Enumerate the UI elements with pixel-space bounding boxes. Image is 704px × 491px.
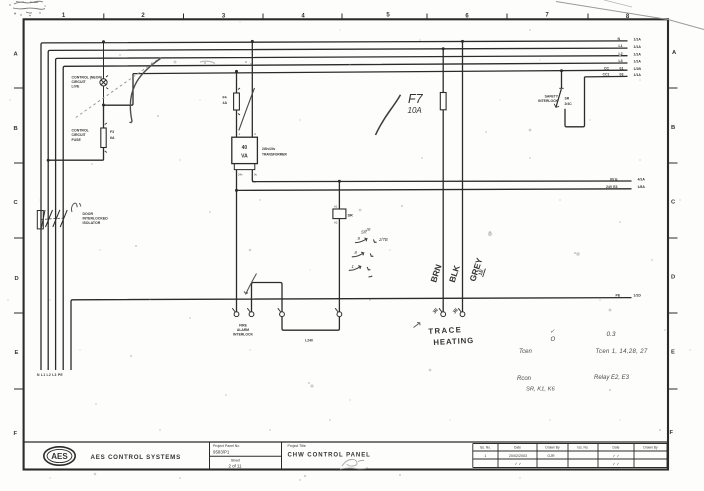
svg-text:FUSE: FUSE: [72, 138, 82, 142]
svg-text:TRANSFORMER: TRANSFORMER: [262, 153, 287, 157]
svg-text:1/1A: 1/1A: [634, 45, 642, 49]
svg-text:✓ ✓: ✓ ✓: [514, 462, 521, 466]
svg-text:CONTROL (NEON): CONTROL (NEON): [72, 75, 103, 79]
svg-text:B: B: [671, 125, 675, 131]
svg-text:CC1: CC1: [603, 73, 610, 77]
svg-text:1/1D: 1/1D: [634, 294, 642, 298]
svg-text:F7: F7: [408, 92, 424, 106]
svg-text:1/1A: 1/1A: [634, 60, 642, 64]
svg-text:40: 40: [242, 145, 248, 151]
svg-text:24v: 24v: [238, 173, 243, 177]
svg-text:L3: L3: [619, 59, 623, 63]
svg-text:VA: VA: [241, 154, 248, 160]
svg-text:Drawn By: Drawn By: [643, 446, 658, 450]
svg-text:Rcon: Rcon: [517, 376, 532, 382]
svg-text:9583/P1: 9583/P1: [213, 449, 230, 454]
svg-text:Sheet: Sheet: [231, 458, 240, 462]
svg-text:F4: F4: [223, 96, 227, 100]
svg-text:B: B: [14, 126, 18, 132]
svg-text:FIRE: FIRE: [239, 324, 247, 328]
svg-text:01: 01: [620, 66, 624, 70]
svg-text:PE: PE: [616, 294, 621, 298]
svg-text:Tcen 1, 14,28, 27: Tcen 1, 14,28, 27: [596, 349, 648, 355]
svg-text:INTERLOCK: INTERLOCK: [233, 332, 253, 336]
svg-text:1/1A: 1/1A: [634, 38, 642, 42]
svg-text:Iss. No.: Iss. No.: [577, 446, 588, 450]
svg-text:ISOLATOR: ISOLATOR: [83, 221, 101, 225]
svg-text:F: F: [670, 430, 674, 436]
svg-text:L240: L240: [305, 339, 313, 343]
svg-text:A1: A1: [334, 205, 338, 209]
svg-text:D: D: [671, 275, 675, 281]
svg-text:CONTROL: CONTROL: [72, 129, 90, 133]
svg-text:E: E: [15, 350, 19, 356]
svg-text:Iss. No.: Iss. No.: [480, 446, 491, 450]
svg-text:1/1A: 1/1A: [634, 73, 642, 77]
svg-text:L1: L1: [619, 44, 623, 48]
svg-text:Date: Date: [613, 446, 620, 450]
svg-text:✓: ✓: [550, 329, 555, 335]
svg-text:24V E3: 24V E3: [606, 185, 618, 189]
svg-text:✓ ✓: ✓ ✓: [612, 462, 619, 466]
svg-text:6A: 6A: [110, 136, 115, 140]
svg-text:O: O: [551, 337, 556, 343]
svg-text:Drawn By: Drawn By: [545, 446, 560, 450]
svg-text:2/7B: 2/7B: [378, 237, 388, 242]
svg-text:CIRCUIT: CIRCUIT: [72, 133, 87, 137]
svg-text:2/4C: 2/4C: [565, 102, 573, 106]
svg-text:1: 1: [484, 454, 486, 458]
svg-text:INTERLOCKED: INTERLOCKED: [83, 216, 109, 220]
svg-text:Tcen: Tcen: [519, 349, 532, 355]
svg-text:N L1 L2 L3 PE: N L1 L2 L3 PE: [37, 373, 63, 377]
svg-text:✓ ✓: ✓ ✓: [612, 454, 619, 458]
svg-text:DOOR: DOOR: [83, 212, 94, 216]
svg-text:0.3: 0.3: [607, 331, 616, 338]
svg-text:CHW CONTROL PANEL: CHW CONTROL PANEL: [288, 453, 371, 459]
svg-text:0V E: 0V E: [610, 177, 618, 181]
svg-text:03: 03: [620, 73, 624, 77]
svg-text:4/1A: 4/1A: [638, 178, 646, 182]
svg-text:1: 1: [352, 264, 354, 269]
svg-text:INTERLOCK: INTERLOCK: [538, 99, 558, 103]
svg-text:ALARM: ALARM: [237, 328, 249, 332]
svg-text:Project Title: Project Title: [288, 444, 306, 448]
svg-text:1/1B: 1/1B: [634, 67, 642, 71]
svg-text:AES CONTROL SYSTEMS: AES CONTROL SYSTEMS: [91, 454, 181, 461]
svg-text:SR: SR: [565, 97, 570, 101]
svg-text:SR: SR: [348, 214, 354, 218]
svg-text:SR, K1, K6: SR, K1, K6: [526, 387, 555, 393]
svg-text:10A: 10A: [408, 106, 422, 115]
svg-text:CC: CC: [604, 66, 610, 70]
svg-text:Relay E2, E3: Relay E2, E3: [594, 375, 630, 381]
svg-text:Project Panel No: Project Panel No: [213, 444, 239, 448]
svg-text:LIVE: LIVE: [72, 85, 80, 89]
svg-text:F: F: [14, 431, 18, 437]
svg-text:TRACE: TRACE: [428, 325, 462, 336]
svg-text:Date: Date: [514, 446, 521, 450]
svg-text:1/1A: 1/1A: [634, 52, 642, 56]
svg-text:240v/24v: 240v/24v: [262, 147, 276, 151]
svg-text:1/8A: 1/8A: [638, 185, 646, 189]
svg-text:GJR: GJR: [547, 454, 555, 458]
svg-text:F3: F3: [110, 130, 114, 134]
svg-text:4A: 4A: [223, 101, 228, 105]
svg-text:20/02/2003: 20/02/2003: [509, 454, 527, 458]
svg-text:CIRCUIT: CIRCUIT: [72, 80, 87, 84]
svg-text:D: D: [15, 276, 19, 282]
svg-text:1B: 1B: [366, 228, 371, 232]
svg-text:E: E: [671, 350, 675, 356]
svg-text:AES: AES: [51, 452, 68, 461]
svg-text:A2: A2: [334, 221, 338, 225]
svg-text:2 of 11: 2 of 11: [228, 464, 242, 469]
